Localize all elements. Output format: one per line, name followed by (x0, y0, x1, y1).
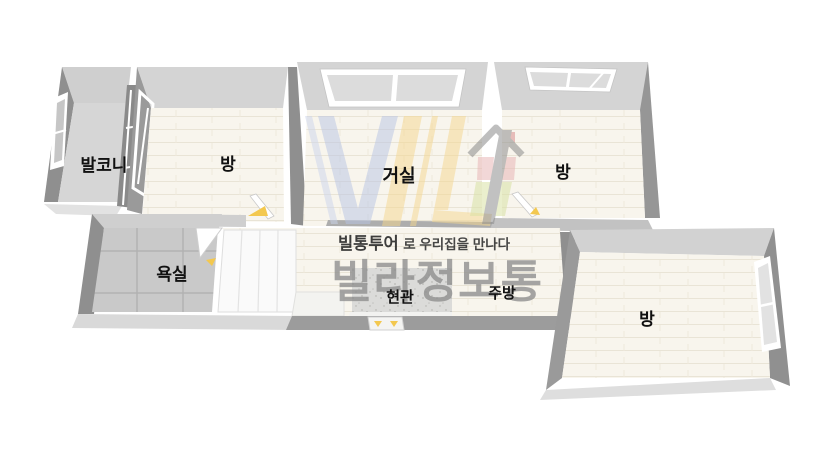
wall-top (570, 228, 774, 256)
label-bathroom: 욕실 (156, 265, 187, 284)
room3-floor (562, 252, 770, 378)
front-door-leaf (368, 317, 404, 330)
label-room1: 방 (220, 155, 236, 174)
bathroom-top-band (92, 214, 222, 228)
slogan-rest: 로 우리집을 만나다 (403, 236, 510, 252)
room1-block (127, 67, 307, 227)
bottom-wall (286, 316, 572, 330)
label-room2: 방 (555, 163, 571, 182)
balcony-block (44, 67, 141, 216)
wall-top (137, 67, 288, 108)
label-balcony: 발코니 (81, 156, 128, 175)
slogan-bold: 빌통투어 (338, 234, 399, 253)
floor-plan-page: 빌통투어 로 우리집을 만나다 빌라정보통 발코니 방 거실 방 욕실 현관 주… (0, 0, 840, 472)
watermark-slogan: 빌통투어 로 우리집을 만나다 (338, 234, 511, 253)
label-room3: 방 (639, 310, 655, 329)
closet-front (218, 230, 296, 312)
floor-plan-canvas: 빌통투어 로 우리집을 만나다 빌라정보통 발코니 방 거실 방 욕실 현관 주… (0, 0, 840, 472)
wall-top (62, 67, 131, 103)
label-entrance: 현관 (386, 289, 414, 306)
label-living: 거실 (382, 166, 415, 186)
label-kitchen: 주방 (488, 284, 516, 302)
room3-bottom-slab (540, 378, 776, 400)
bathroom-bottom-slab (72, 314, 296, 330)
room3-block (540, 228, 790, 400)
